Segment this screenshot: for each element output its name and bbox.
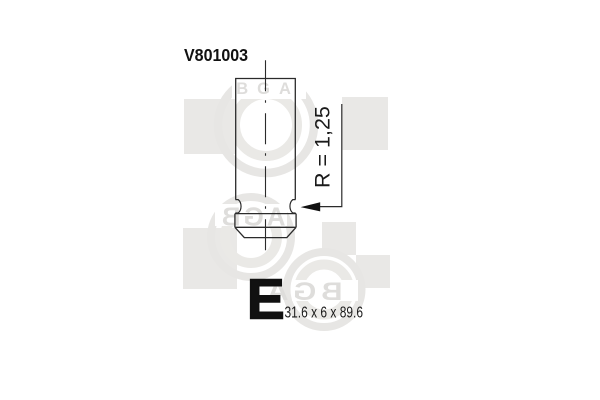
svg-text:V801003: V801003	[184, 45, 248, 65]
svg-text:31.6 x 6 x 89.6: 31.6 x 6 x 89.6	[285, 303, 364, 321]
svg-text:BGA: BGA	[236, 80, 300, 98]
svg-text:E: E	[247, 267, 285, 331]
svg-text:R = 1,25: R = 1,25	[311, 106, 335, 188]
